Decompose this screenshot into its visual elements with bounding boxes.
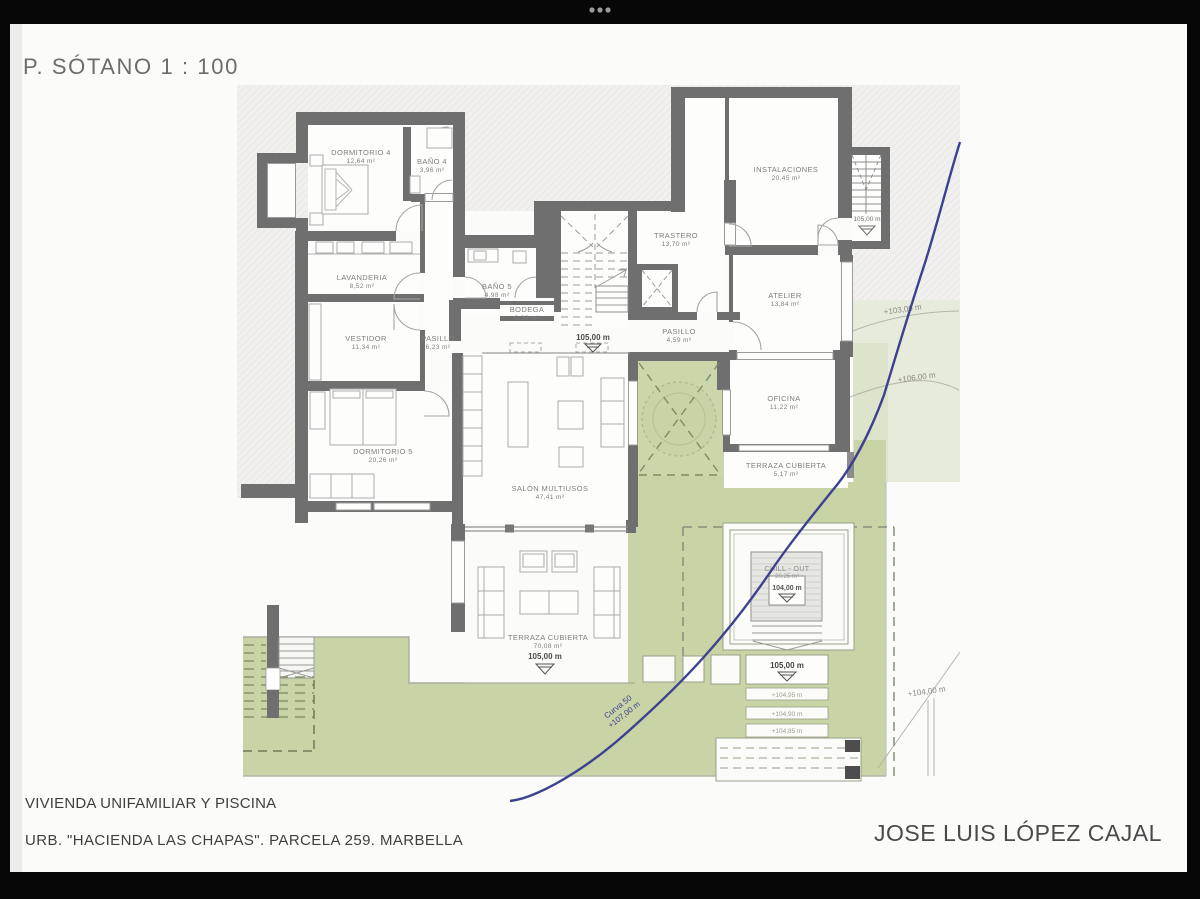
svg-text:BAÑO 4: BAÑO 4 [417, 157, 447, 166]
svg-text:BODEGA: BODEGA [510, 305, 545, 314]
svg-text:TRASTERO: TRASTERO [654, 231, 698, 240]
svg-text:12,64 m²: 12,64 m² [347, 158, 376, 165]
svg-text:INSTALACIONES: INSTALACIONES [754, 165, 819, 174]
svg-text:20,45 m²: 20,45 m² [772, 175, 801, 182]
svg-text:0,20 m²: 0,20 m² [515, 315, 540, 322]
svg-text:ATELIER: ATELIER [768, 291, 802, 300]
svg-text:TERRAZA CUBIERTA: TERRAZA CUBIERTA [508, 633, 588, 642]
svg-text:8,52 m²: 8,52 m² [350, 283, 375, 290]
svg-text:4,59 m²: 4,59 m² [667, 337, 692, 344]
svg-text:+104,95 m: +104,95 m [772, 692, 803, 699]
svg-text:20,25 m²: 20,25 m² [775, 574, 799, 580]
svg-text:URB. "HACIENDA LAS CHAPAS". PA: URB. "HACIENDA LAS CHAPAS". PARCELA 259.… [25, 832, 463, 849]
svg-text:13,70 m²: 13,70 m² [662, 241, 691, 248]
svg-text:SALÓN MULTIUSOS: SALÓN MULTIUSOS [512, 484, 589, 493]
svg-text:105,00 m: 105,00 m [770, 661, 804, 670]
svg-text:5,17 m²: 5,17 m² [774, 471, 799, 478]
svg-text:P. SÓTANO 1 : 100: P. SÓTANO 1 : 100 [23, 54, 239, 79]
svg-text:DORMITORIO 4: DORMITORIO 4 [331, 148, 391, 157]
svg-text:105,00 m: 105,00 m [576, 333, 610, 342]
svg-text:11,22 m²: 11,22 m² [770, 404, 799, 411]
svg-text:47,41 m²: 47,41 m² [536, 494, 565, 501]
svg-text:3,96 m²: 3,96 m² [420, 167, 445, 174]
svg-text:11,34 m²: 11,34 m² [352, 344, 381, 351]
svg-text:6,23 m²: 6,23 m² [426, 344, 451, 351]
svg-text:4,98 m²: 4,98 m² [485, 292, 510, 299]
svg-text:13,84 m²: 13,84 m² [771, 301, 800, 308]
svg-text:+104,85 m: +104,85 m [772, 728, 803, 735]
svg-text:LAVANDERIA: LAVANDERIA [337, 273, 387, 282]
svg-text:105,00 m: 105,00 m [528, 652, 562, 661]
svg-text:PASILLO: PASILLO [662, 327, 696, 336]
svg-text:+104,90 m: +104,90 m [772, 711, 803, 718]
svg-text:70,08 m²: 70,08 m² [534, 643, 563, 650]
svg-text:DORMITORIO 5: DORMITORIO 5 [353, 447, 413, 456]
svg-text:PASILLO: PASILLO [421, 334, 455, 343]
svg-text:VIVIENDA UNIFAMILIAR Y PISCINA: VIVIENDA UNIFAMILIAR Y PISCINA [25, 795, 276, 812]
svg-text:BAÑO 5: BAÑO 5 [482, 282, 512, 291]
svg-text:20,26 m²: 20,26 m² [369, 457, 398, 464]
svg-text:JOSE LUIS LÓPEZ CAJAL: JOSE LUIS LÓPEZ CAJAL [874, 820, 1162, 846]
svg-text:VESTIDOR: VESTIDOR [345, 334, 387, 343]
svg-text:OFICINA: OFICINA [767, 394, 800, 403]
svg-text:105,00 m: 105,00 m [853, 216, 880, 223]
svg-text:TERRAZA CUBIERTA: TERRAZA CUBIERTA [746, 461, 826, 470]
svg-text:104,00 m: 104,00 m [772, 585, 802, 592]
